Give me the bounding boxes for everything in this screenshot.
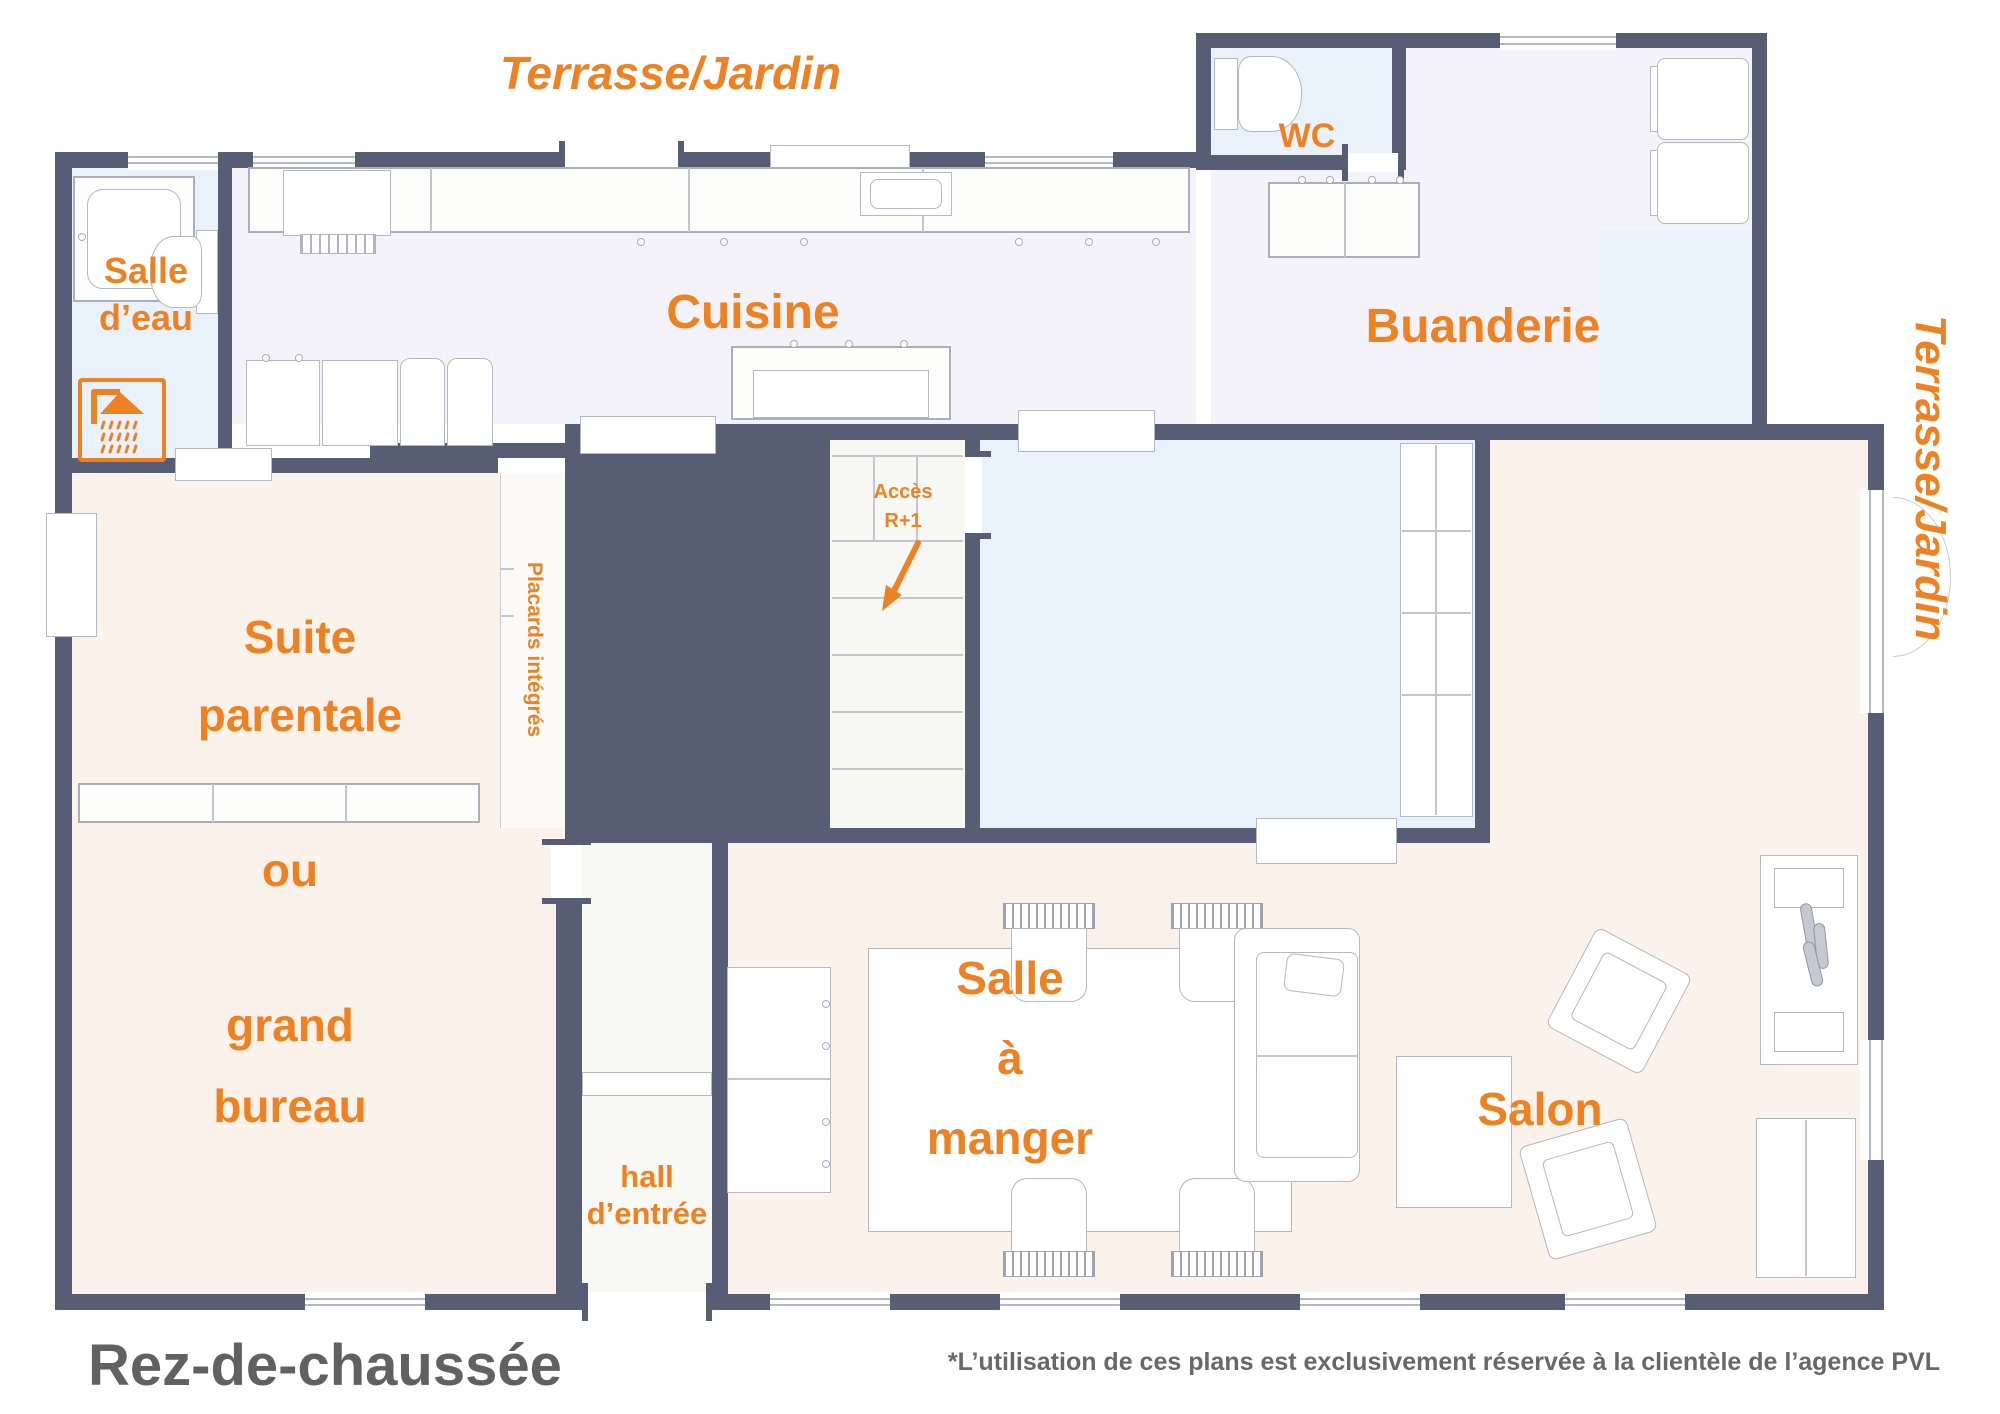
- knob: [720, 238, 728, 246]
- knob: [822, 1118, 830, 1126]
- label-cuisine: Cuisine: [603, 276, 903, 350]
- knob: [1298, 176, 1306, 184]
- door-jamb: [712, 1062, 720, 1106]
- chair-seat: [1011, 1178, 1087, 1252]
- label-wc: WC: [1247, 110, 1367, 163]
- label-suite-parentale: Suite parentale: [150, 598, 450, 754]
- counter-divider: [1344, 183, 1346, 257]
- fridge: [447, 358, 493, 446]
- label-grand-bureau: grand bureau: [140, 985, 440, 1146]
- dryer: [1657, 142, 1749, 224]
- stove: [283, 170, 391, 236]
- knob: [822, 1160, 830, 1168]
- sofa-cushion-line: [1257, 1055, 1357, 1057]
- knob: [800, 238, 808, 246]
- knob: [1368, 176, 1376, 184]
- label-salle-a-manger: Salle à manger: [860, 938, 1160, 1178]
- sink-basin: [870, 179, 942, 209]
- wall: [1196, 33, 1767, 48]
- dryer-door: [1650, 150, 1658, 216]
- hall-side-door-opening: [551, 845, 582, 898]
- cabinet-shelf: [1402, 612, 1471, 614]
- wall: [1392, 33, 1406, 155]
- chair-seat: [1179, 1178, 1255, 1252]
- wall: [565, 828, 1256, 843]
- wall: [1752, 33, 1767, 440]
- appliance: [322, 360, 398, 446]
- sideboard-divider: [728, 1078, 830, 1080]
- knob: [822, 1042, 830, 1050]
- window: [770, 1292, 890, 1312]
- chair-back: [1171, 903, 1263, 929]
- window: [1565, 1292, 1685, 1312]
- label-salon: Salon: [1390, 1074, 1690, 1145]
- label-placards: Placards intégrés: [516, 550, 550, 750]
- chair-back: [1171, 1251, 1263, 1277]
- label-ou: ou: [190, 835, 390, 906]
- label-acces-r1: Accès R+1: [853, 478, 953, 536]
- front-door-opening: [588, 1292, 706, 1312]
- footnote: *L’utilisation de ces plans est exclusiv…: [880, 1348, 1940, 1377]
- counter-divider: [688, 168, 690, 232]
- washer-door: [1650, 66, 1658, 132]
- page-title: Rez-de-chaussée: [88, 1332, 788, 1399]
- hall-interior-door: [582, 1072, 712, 1096]
- knob: [1015, 238, 1023, 246]
- knob: [262, 354, 270, 362]
- label-buanderie: Buanderie: [1333, 290, 1633, 364]
- cabinet-shelf: [1402, 530, 1471, 532]
- stair-tread: [832, 768, 963, 770]
- knob: [1085, 238, 1093, 246]
- kitchen-island-cabinet: [753, 370, 929, 418]
- wall: [1475, 440, 1490, 843]
- stairs-door-opening: [963, 457, 982, 533]
- knob: [637, 238, 645, 246]
- room-salon-upper: [1490, 440, 1868, 843]
- fireplace-shelf: [1774, 1012, 1844, 1052]
- sofa-pillow: [1283, 953, 1345, 998]
- counter-divider: [430, 168, 432, 232]
- wall: [580, 424, 1883, 440]
- window: [1300, 1292, 1420, 1312]
- cabinet-shelf: [1402, 694, 1471, 696]
- wall: [1868, 713, 1884, 1308]
- label-terrasse-right: Terrasse/Jardin: [1904, 308, 1964, 648]
- door-salle-eau: [175, 448, 272, 481]
- floor-plan: Salle d’eau Cuisine WC Buanderie Suite p…: [0, 0, 2000, 1414]
- wall-core: [565, 424, 830, 843]
- knob: [1152, 238, 1160, 246]
- label-hall: hall d’entrée: [580, 1158, 714, 1232]
- label-salle-eau: Salle d’eau: [66, 248, 226, 342]
- knob: [1396, 176, 1404, 184]
- window-left: [46, 513, 97, 637]
- chair-back: [1003, 903, 1095, 929]
- window: [305, 1292, 425, 1312]
- window: [1500, 31, 1616, 50]
- washer: [1657, 58, 1749, 140]
- wardrobe-divider: [212, 784, 214, 822]
- stair-tread: [832, 455, 963, 457]
- window: [1000, 1292, 1120, 1312]
- wardrobe: [78, 783, 480, 823]
- stove-grill: [300, 234, 376, 254]
- toilet-tank: [1214, 58, 1238, 130]
- wall: [1397, 828, 1490, 843]
- cabinet-divider: [1435, 445, 1437, 815]
- pass-through-bottom: [1256, 818, 1397, 864]
- stairs-down-arrow-icon: [868, 533, 932, 619]
- knob: [1326, 176, 1334, 184]
- fridge: [400, 358, 445, 446]
- fireplace-shelf: [1774, 868, 1844, 908]
- placard-line: [500, 615, 514, 617]
- console-divider: [1805, 1120, 1807, 1276]
- wall: [1196, 33, 1211, 168]
- shower: [78, 378, 166, 462]
- appliance: [246, 360, 320, 446]
- window-right: [1860, 1040, 1892, 1160]
- french-door: [1860, 490, 1893, 713]
- knob: [295, 354, 303, 362]
- placard-line: [500, 568, 514, 570]
- window: [128, 150, 218, 170]
- shower-icon: [86, 384, 158, 456]
- wall: [1868, 424, 1884, 492]
- door-jamb: [574, 1062, 582, 1106]
- pass-through-top: [1018, 410, 1155, 452]
- stair-tread: [832, 654, 963, 656]
- stair-tread: [832, 711, 963, 713]
- label-terrasse-top: Terrasse/Jardin: [500, 38, 830, 109]
- sideboard: [727, 967, 831, 1193]
- bathtub-faucet: [78, 233, 86, 241]
- knob: [822, 1000, 830, 1008]
- wardrobe-divider: [345, 784, 347, 822]
- pass-through-hatch: [580, 416, 716, 454]
- chair-back: [1003, 1251, 1095, 1277]
